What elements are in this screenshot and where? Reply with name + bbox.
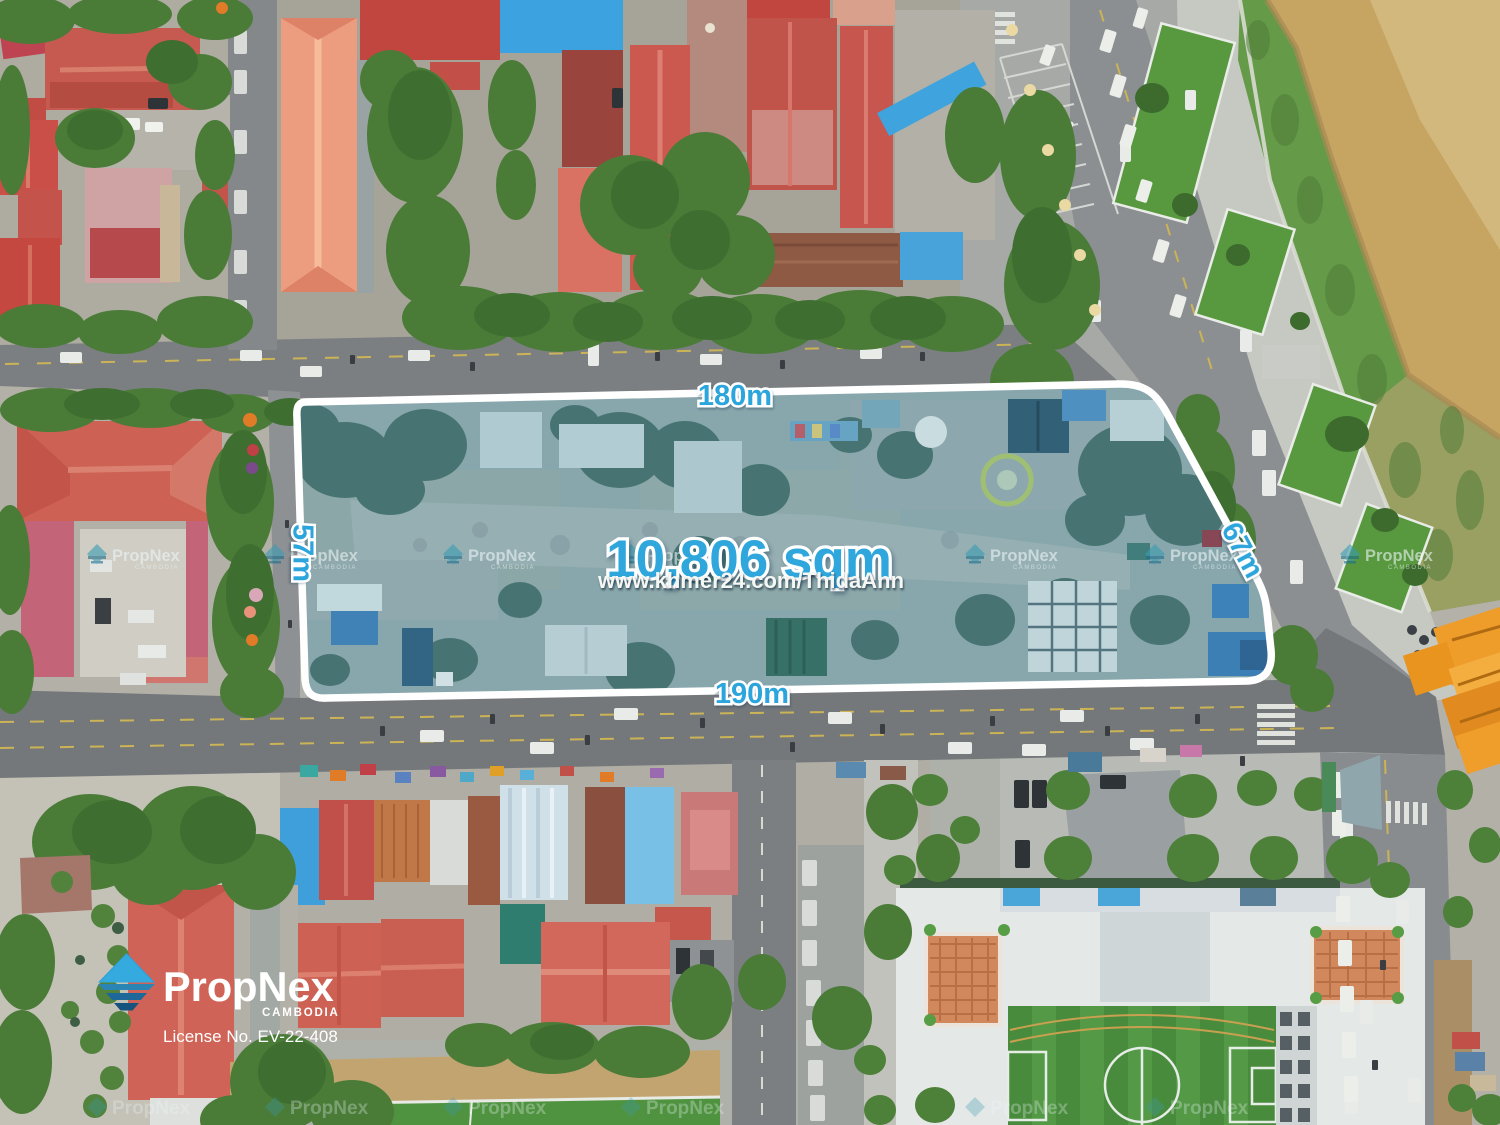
svg-text:CAMBODIA: CAMBODIA — [491, 565, 535, 571]
svg-text:180m: 180m — [698, 380, 772, 412]
svg-text:CAMBODIA: CAMBODIA — [1388, 565, 1432, 571]
svg-text:CAMBODIA: CAMBODIA — [1193, 565, 1237, 571]
svg-text:PropNex: PropNex — [163, 963, 334, 1010]
svg-text:PropNex: PropNex — [468, 547, 537, 565]
svg-text:CAMBODIA: CAMBODIA — [262, 1007, 340, 1019]
svg-text:PropNex: PropNex — [1170, 1098, 1249, 1119]
svg-text:PropNex: PropNex — [468, 1098, 547, 1119]
svg-text:CAMBODIA: CAMBODIA — [1013, 565, 1057, 571]
svg-text:190m: 190m — [715, 678, 789, 710]
svg-text:57m: 57m — [286, 524, 318, 582]
svg-text:PropNex: PropNex — [112, 547, 181, 565]
svg-text:PropNex: PropNex — [990, 547, 1059, 565]
svg-text:PropNex: PropNex — [290, 1098, 369, 1119]
svg-text:www.khmer24.com/ThidaAnn: www.khmer24.com/ThidaAnn — [597, 568, 904, 593]
svg-text:PropNex: PropNex — [990, 1098, 1069, 1119]
svg-text:CAMBODIA: CAMBODIA — [313, 565, 357, 571]
svg-text:PropNex: PropNex — [646, 1098, 725, 1119]
svg-text:CAMBODIA: CAMBODIA — [135, 565, 179, 571]
svg-text:License No. EV-22-408: License No. EV-22-408 — [163, 1027, 338, 1046]
svg-text:PropNex: PropNex — [1365, 547, 1434, 565]
svg-text:PropNex: PropNex — [112, 1098, 191, 1119]
